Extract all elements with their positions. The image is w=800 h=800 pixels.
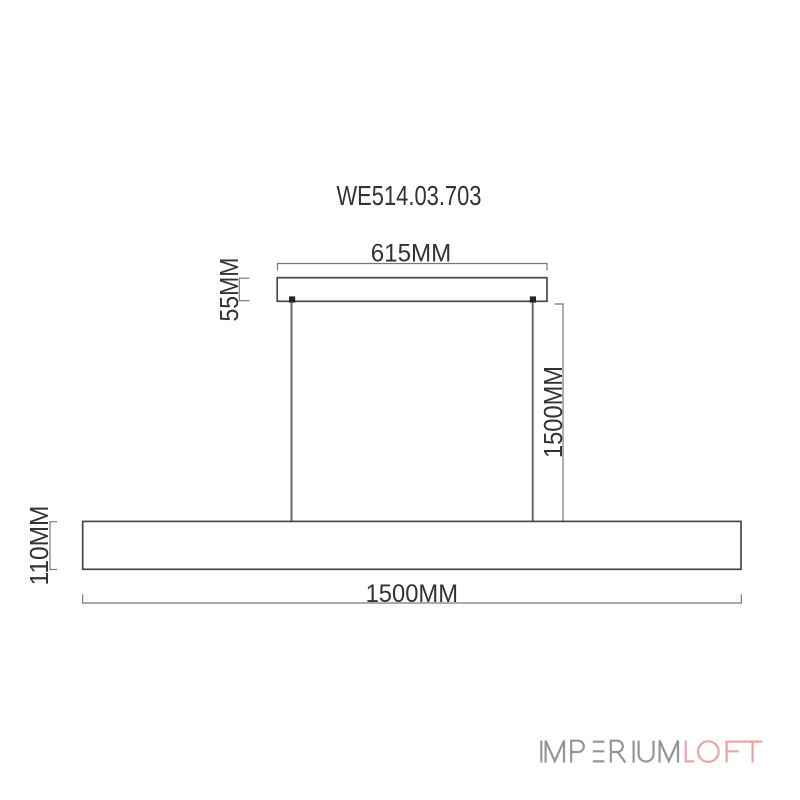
svg-text:WE514.03.703: WE514.03.703	[337, 180, 482, 211]
svg-text:1500MM: 1500MM	[538, 366, 568, 458]
svg-text:1500MM: 1500MM	[366, 580, 458, 608]
